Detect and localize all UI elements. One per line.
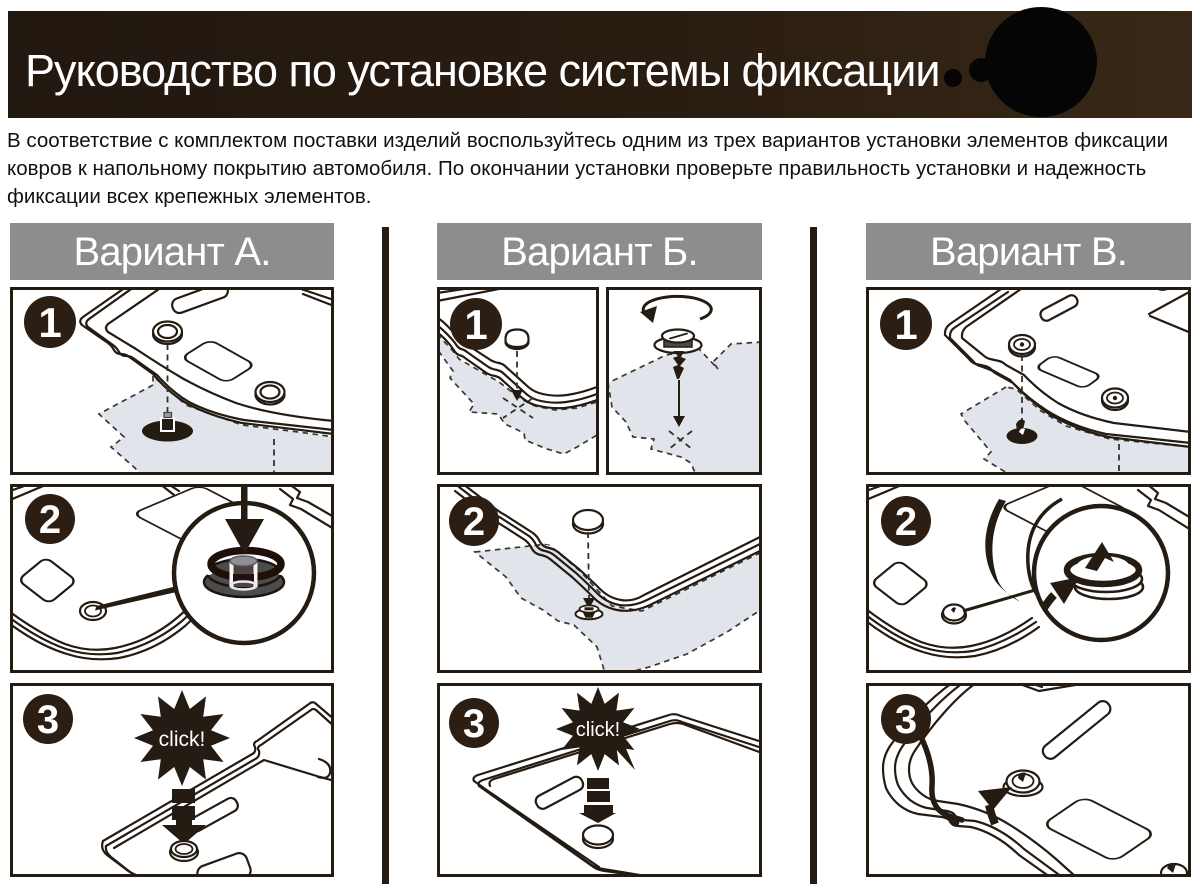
svg-text:2: 2: [895, 500, 917, 544]
svg-text:1: 1: [894, 301, 917, 348]
svg-text:2: 2: [39, 498, 61, 542]
svg-text:1: 1: [38, 299, 61, 346]
svg-text:3: 3: [895, 698, 917, 742]
svg-text:3: 3: [463, 702, 485, 746]
svg-text:3: 3: [37, 698, 59, 742]
svg-text:1: 1: [464, 301, 487, 348]
svg-text:click!: click!: [159, 728, 206, 751]
svg-text:click!: click!: [576, 719, 620, 741]
svg-text:2: 2: [463, 500, 485, 544]
